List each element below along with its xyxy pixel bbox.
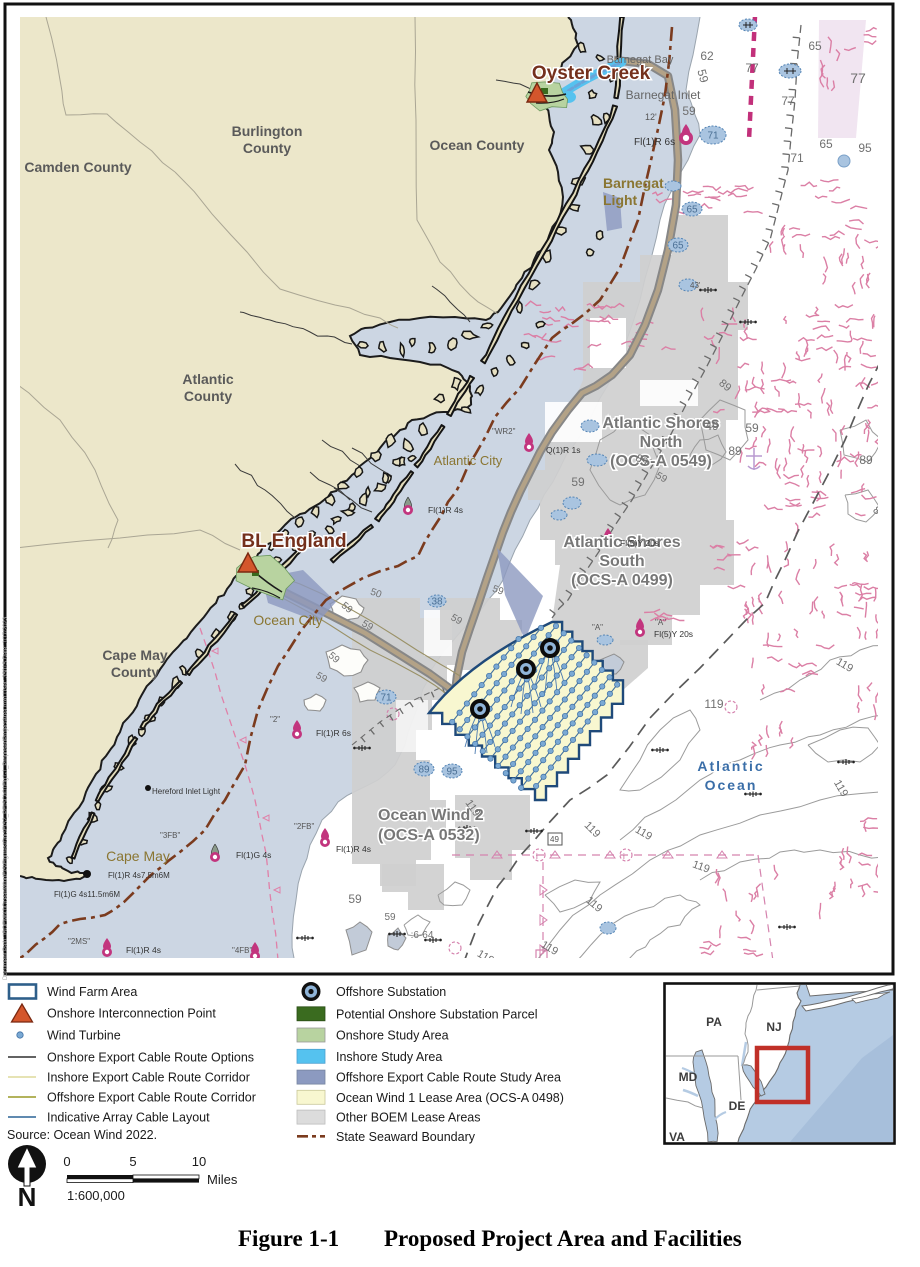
svg-text:North: North	[640, 434, 683, 451]
svg-text:65: 65	[808, 39, 822, 53]
svg-text:Light: Light	[603, 192, 638, 208]
svg-text:Atlantic: Atlantic	[182, 371, 234, 387]
svg-text:South: South	[599, 553, 644, 570]
svg-text:Source: Ocean Wind 2022.: Source: Ocean Wind 2022.	[7, 1128, 157, 1142]
svg-text:Fl(1)R 4s7.5m6M: Fl(1)R 4s7.5m6M	[108, 871, 170, 880]
svg-text:59: 59	[682, 104, 696, 118]
svg-text:Ocean County: Ocean County	[430, 137, 525, 153]
svg-text:County: County	[184, 388, 232, 404]
svg-text:(OCS-A 0549): (OCS-A 0549)	[610, 453, 712, 470]
svg-text:62: 62	[700, 49, 714, 63]
svg-text:County: County	[243, 140, 291, 156]
svg-text:5: 5	[129, 1154, 136, 1169]
svg-text:Onshore Interconnection Point: Onshore Interconnection Point	[47, 1007, 216, 1021]
svg-text:"2": "2"	[270, 715, 280, 724]
svg-text:"4FB": "4FB"	[232, 946, 253, 955]
svg-text:49: 49	[705, 419, 719, 433]
svg-text:49: 49	[550, 835, 559, 844]
svg-text:65: 65	[672, 241, 684, 252]
svg-text:Onshore Export Cable Route Opt: Onshore Export Cable Route Options	[47, 1051, 254, 1065]
svg-text:Fl(1)R 4s: Fl(1)R 4s	[336, 844, 371, 854]
svg-text:Camden County: Camden County	[24, 159, 132, 175]
svg-text:Figure 1-1: Figure 1-1	[238, 1226, 339, 1251]
svg-text:0: 0	[63, 1154, 70, 1169]
svg-text:Offshore Export Cable Route Co: Offshore Export Cable Route Corridor	[47, 1091, 256, 1105]
svg-text:County: County	[111, 664, 159, 680]
svg-text:Wind Farm Area: Wind Farm Area	[47, 985, 137, 999]
svg-text:77: 77	[781, 94, 795, 108]
svg-text:Inshore Study Area: Inshore Study Area	[336, 1050, 442, 1064]
svg-text:Ocean City: Ocean City	[253, 612, 322, 628]
svg-text:1:600,000: 1:600,000	[67, 1188, 125, 1203]
svg-text:Potential Onshore Substation P: Potential Onshore Substation Parcel	[336, 1007, 538, 1021]
svg-text:"WR2": "WR2"	[492, 427, 516, 436]
svg-text:65: 65	[686, 205, 698, 216]
svg-text:Fl(5)Y 20s: Fl(5)Y 20s	[620, 538, 659, 548]
svg-text:Cape May: Cape May	[106, 848, 170, 864]
svg-text::6-64: :6-64	[411, 930, 434, 941]
svg-text:"2MS": "2MS"	[68, 937, 90, 946]
svg-text:DE: DE	[729, 1099, 746, 1113]
svg-text:Barnegat: Barnegat	[603, 175, 664, 191]
svg-text:Offshore Export Cable Route St: Offshore Export Cable Route Study Area	[336, 1071, 561, 1085]
svg-text:BL England: BL England	[241, 531, 346, 552]
svg-text:Barnegat Bay: Barnegat Bay	[607, 54, 674, 66]
svg-text:Ocean: Ocean	[705, 777, 758, 793]
svg-text:Fl(1)R 4s: Fl(1)R 4s	[428, 505, 463, 515]
svg-text:"2FB": "2FB"	[294, 822, 315, 831]
svg-text:VA: VA	[669, 1130, 685, 1144]
svg-text:(OCS-A 0499): (OCS-A 0499)	[571, 572, 673, 589]
svg-text:Document Path: \BOEMNJ\OceanWi: Document Path: \BOEMNJ\OceanWindEIS\Figu…	[3, 616, 9, 980]
svg-text:MD: MD	[679, 1070, 698, 1084]
svg-text:95: 95	[446, 767, 458, 778]
svg-text:Ocean Wind 1 Lease Area (OCS-A: Ocean Wind 1 Lease Area (OCS-A 0498)	[336, 1091, 564, 1105]
svg-text:65: 65	[819, 137, 833, 151]
svg-text:38: 38	[431, 597, 443, 608]
svg-text:119: 119	[704, 697, 723, 711]
svg-text:89: 89	[418, 765, 430, 776]
svg-text:Wind Turbine: Wind Turbine	[47, 1029, 121, 1043]
svg-text:Fl(5)Y 20s: Fl(5)Y 20s	[654, 629, 693, 639]
svg-text:"3FB": "3FB"	[160, 831, 181, 840]
svg-text:Oyster Creek: Oyster Creek	[532, 63, 651, 84]
svg-text:71: 71	[790, 151, 804, 165]
svg-text:State Seaward Boundary: State Seaward Boundary	[336, 1130, 476, 1144]
svg-text:NJ: NJ	[766, 1020, 781, 1034]
svg-text:Q(1)R 1s: Q(1)R 1s	[546, 445, 580, 455]
svg-text:71: 71	[707, 131, 719, 142]
svg-text:Atlantic Shores: Atlantic Shores	[602, 415, 719, 432]
svg-text:Barnegat Inlet: Barnegat Inlet	[626, 88, 701, 102]
svg-text:Atlantic City: Atlantic City	[434, 453, 503, 468]
svg-text:Onshore Study Area: Onshore Study Area	[336, 1029, 449, 1043]
svg-text:Atlantic: Atlantic	[697, 758, 764, 774]
svg-text:59: 59	[348, 892, 362, 906]
svg-text:10: 10	[192, 1154, 206, 1169]
svg-text:77: 77	[850, 70, 866, 86]
svg-text:59: 59	[571, 475, 585, 489]
svg-text:i: i	[536, 852, 538, 861]
svg-text:Offshore Substation: Offshore Substation	[336, 985, 446, 999]
svg-text:Proposed Project Area and Faci: Proposed Project Area and Facilities	[384, 1226, 742, 1251]
svg-text:89: 89	[859, 453, 873, 467]
svg-text:Fl(1)G 4s: Fl(1)G 4s	[236, 850, 271, 860]
svg-text:71: 71	[380, 693, 392, 704]
svg-text:"A": "A"	[655, 618, 666, 627]
svg-text:Burlington: Burlington	[232, 123, 303, 139]
svg-text:Inshore Export Cable Route Cor: Inshore Export Cable Route Corridor	[47, 1071, 250, 1085]
svg-text:"A": "A"	[592, 623, 603, 632]
svg-text:(OCS-A 0532): (OCS-A 0532)	[378, 827, 480, 844]
svg-text:43': 43'	[690, 281, 701, 290]
svg-text:Fl(1)R 6s: Fl(1)R 6s	[316, 728, 351, 738]
svg-text:Fl(1)R 4s: Fl(1)R 4s	[126, 945, 161, 955]
svg-text:12': 12'	[645, 112, 657, 122]
svg-text:Cape May: Cape May	[102, 647, 168, 663]
svg-text:Fl(1)G 4s11.5m6M: Fl(1)G 4s11.5m6M	[54, 890, 120, 899]
svg-text:Miles: Miles	[207, 1172, 238, 1187]
svg-text:59: 59	[745, 421, 759, 435]
svg-text:PA: PA	[706, 1015, 722, 1029]
svg-text:i: i	[623, 852, 625, 861]
svg-text:N: N	[18, 1182, 37, 1212]
svg-text:95: 95	[858, 141, 872, 155]
svg-text:Hereford Inlet Light: Hereford Inlet Light	[152, 787, 221, 796]
svg-text:77: 77	[745, 61, 759, 75]
svg-text:59: 59	[384, 912, 396, 923]
svg-text:Other BOEM Lease Areas: Other BOEM Lease Areas	[336, 1111, 481, 1125]
svg-text:Fl(1)R 6s: Fl(1)R 6s	[634, 137, 675, 148]
svg-text:Indicative Array Cable Layout: Indicative Array Cable Layout	[47, 1111, 210, 1125]
svg-text:89: 89	[728, 444, 742, 458]
